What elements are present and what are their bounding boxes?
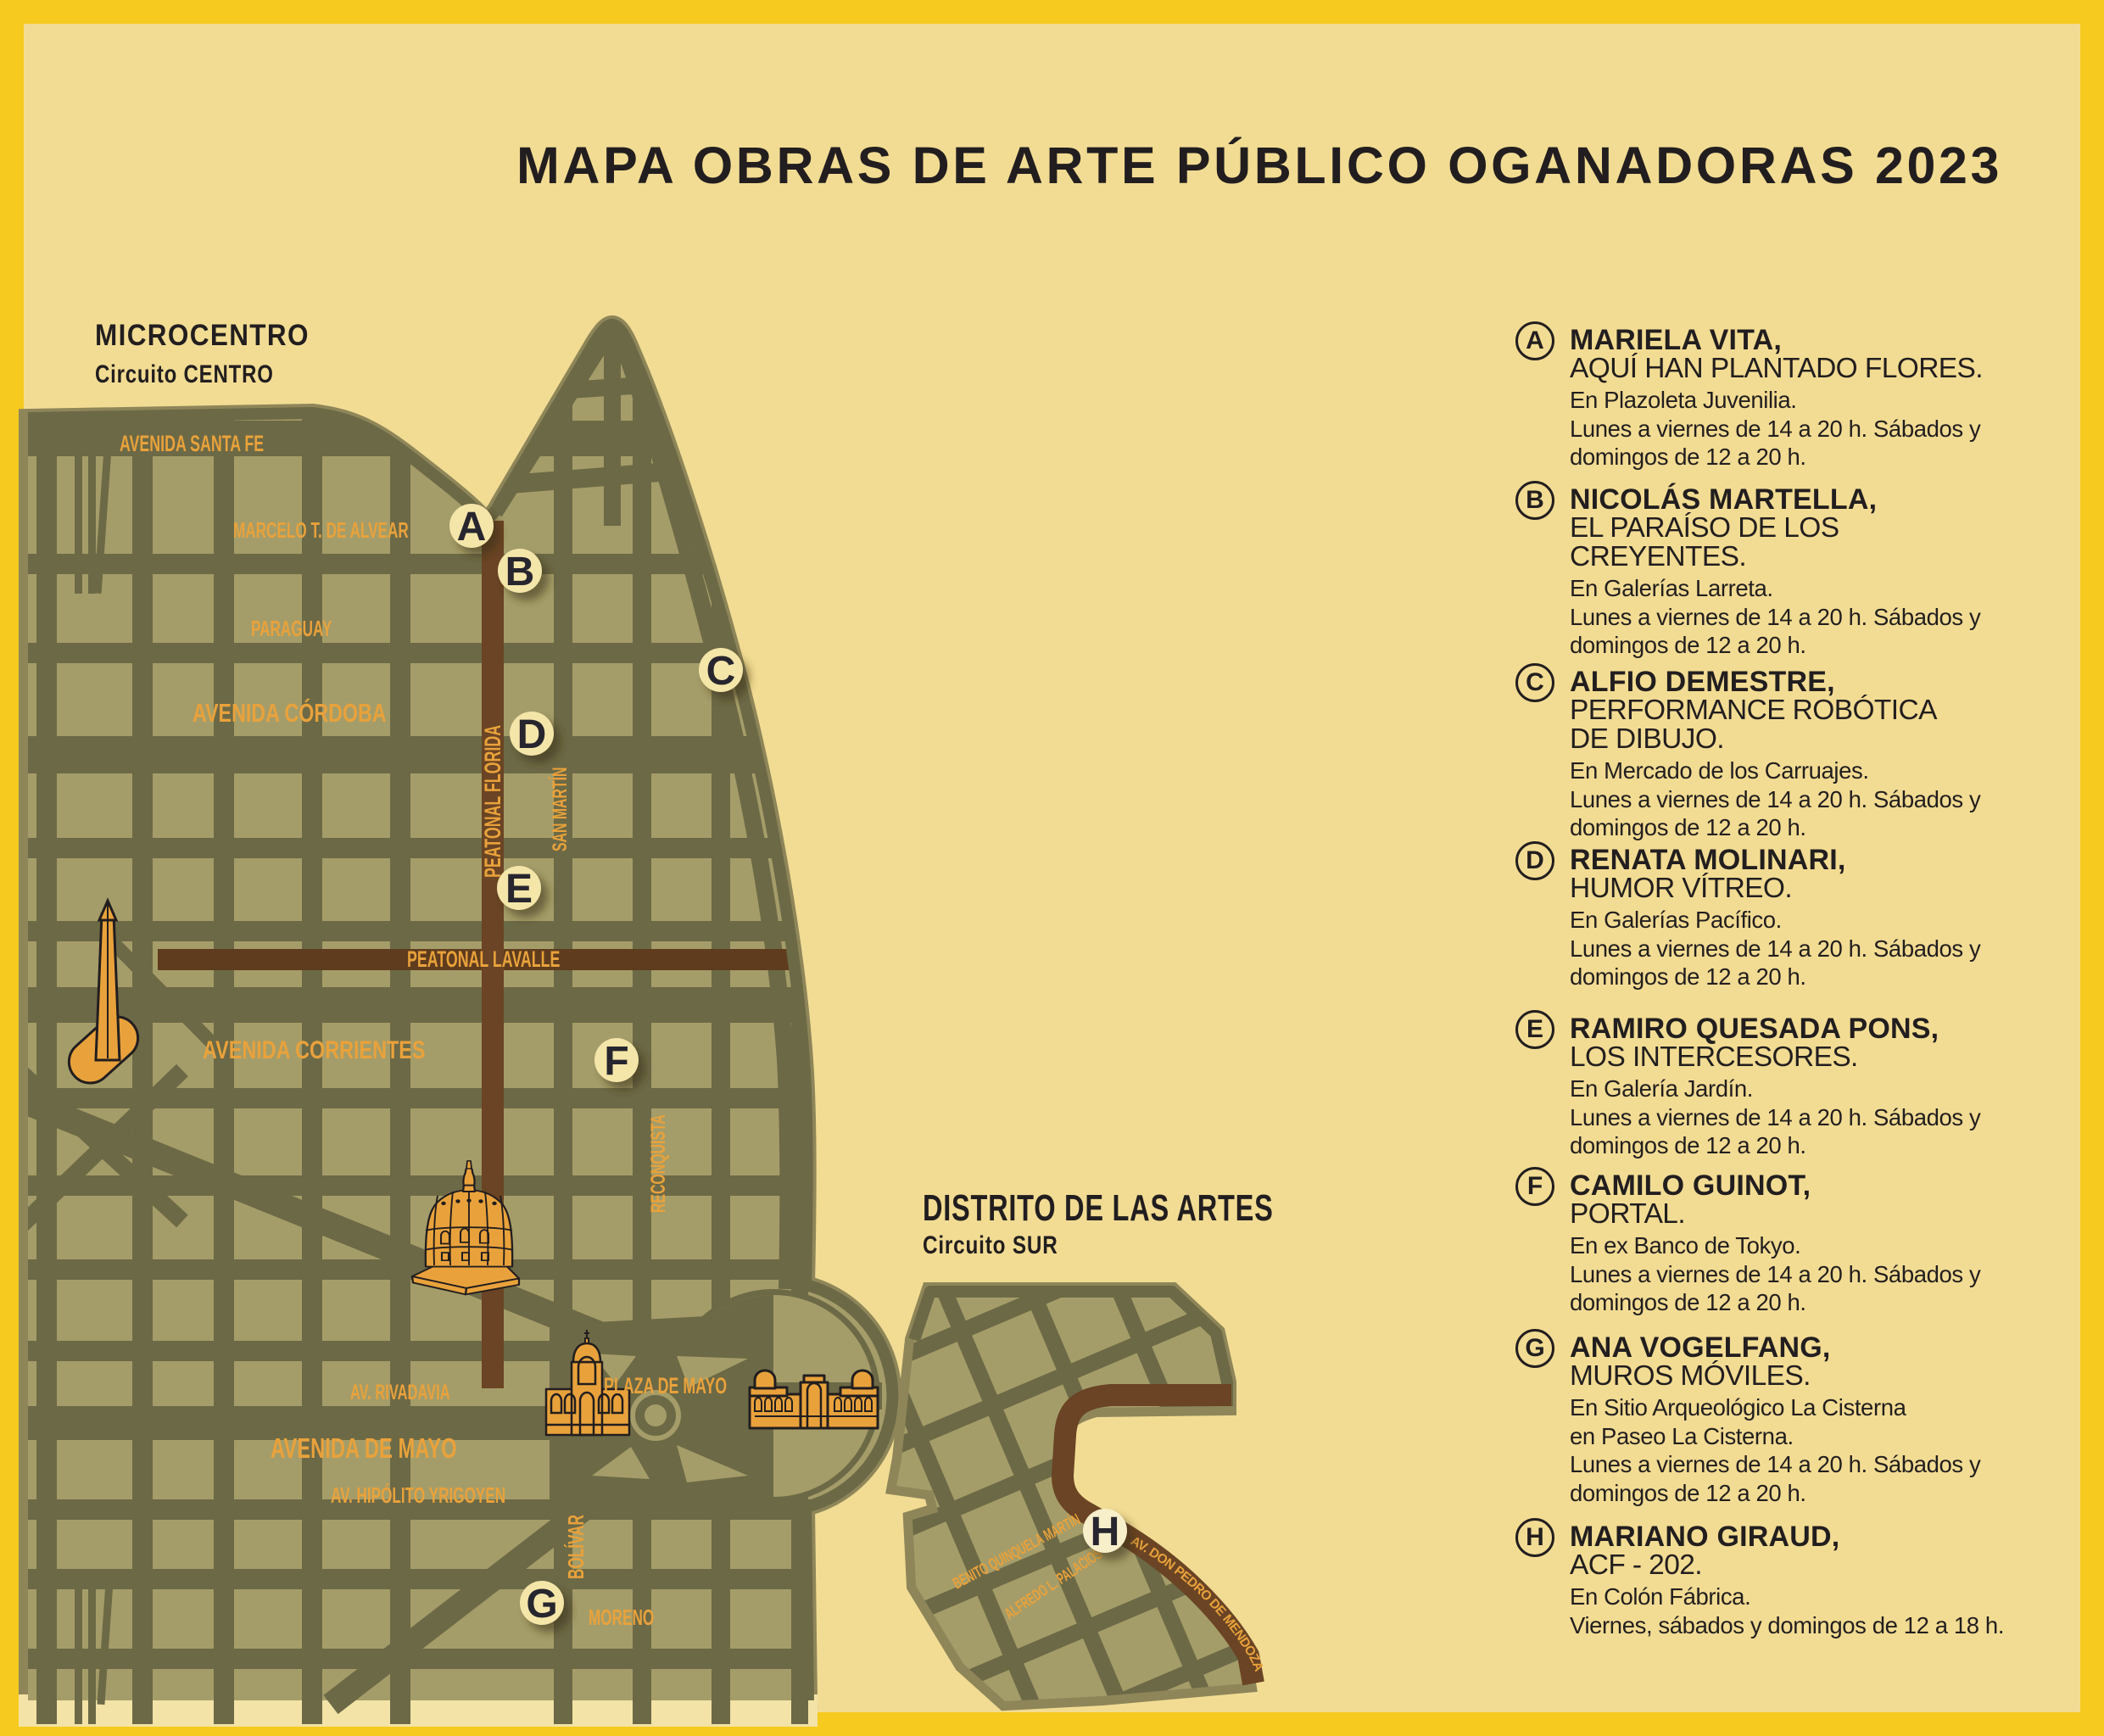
svg-text:AV. HIPÓLITO YRIGOYEN: AV. HIPÓLITO YRIGOYEN: [331, 1482, 505, 1508]
svg-text:AVENIDA CORRIENTES: AVENIDA CORRIENTES: [203, 1035, 425, 1063]
svg-text:MORENO: MORENO: [589, 1605, 654, 1630]
svg-text:F: F: [604, 1039, 628, 1084]
svg-text:SAN MARTÍN: SAN MARTÍN: [549, 768, 572, 851]
svg-text:PEATONAL FLORIDA: PEATONAL FLORIDA: [479, 725, 505, 878]
svg-text:PEATONAL LAVALLE: PEATONAL LAVALLE: [407, 946, 560, 972]
svg-text:MARCELO T. DE ALVEAR: MARCELO T. DE ALVEAR: [233, 517, 409, 543]
svg-text:AV. RIVADAVIA: AV. RIVADAVIA: [350, 1382, 450, 1404]
svg-text:PLAZA DE MAYO: PLAZA DE MAYO: [604, 1372, 727, 1398]
svg-text:B: B: [505, 550, 535, 594]
svg-text:PARAGUAY: PARAGUAY: [251, 616, 332, 641]
svg-text:AVENIDA CÓRDOBA: AVENIDA CÓRDOBA: [193, 698, 387, 728]
svg-text:BOLÍVAR: BOLÍVAR: [563, 1515, 589, 1579]
svg-text:AVENIDA SANTA FE: AVENIDA SANTA FE: [120, 430, 264, 456]
svg-text:RECONQUISTA: RECONQUISTA: [648, 1114, 670, 1213]
svg-text:D: D: [517, 712, 547, 757]
svg-text:A: A: [457, 505, 487, 550]
svg-text:G: G: [526, 1582, 557, 1627]
svg-text:AVENIDA DE MAYO: AVENIDA DE MAYO: [271, 1433, 457, 1465]
svg-text:E: E: [505, 867, 533, 912]
svg-text:H: H: [1091, 1510, 1120, 1555]
svg-text:C: C: [706, 649, 736, 694]
